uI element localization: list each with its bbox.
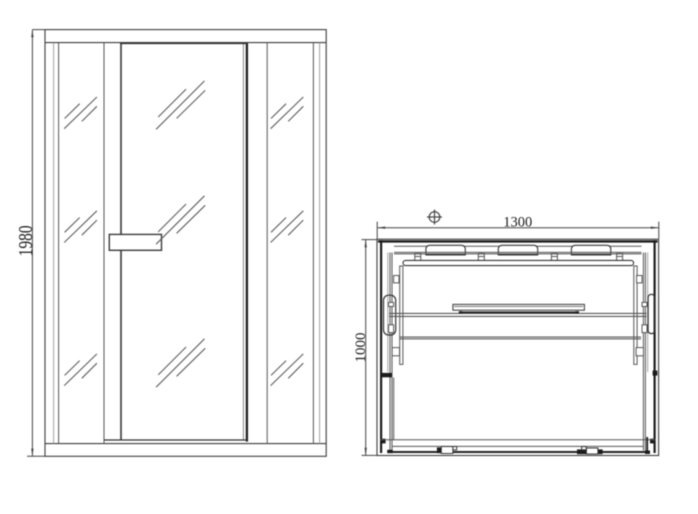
svg-text:1980: 1980 — [14, 225, 36, 256]
svg-text:1300: 1300 — [503, 214, 532, 230]
svg-text:1000: 1000 — [353, 333, 369, 363]
